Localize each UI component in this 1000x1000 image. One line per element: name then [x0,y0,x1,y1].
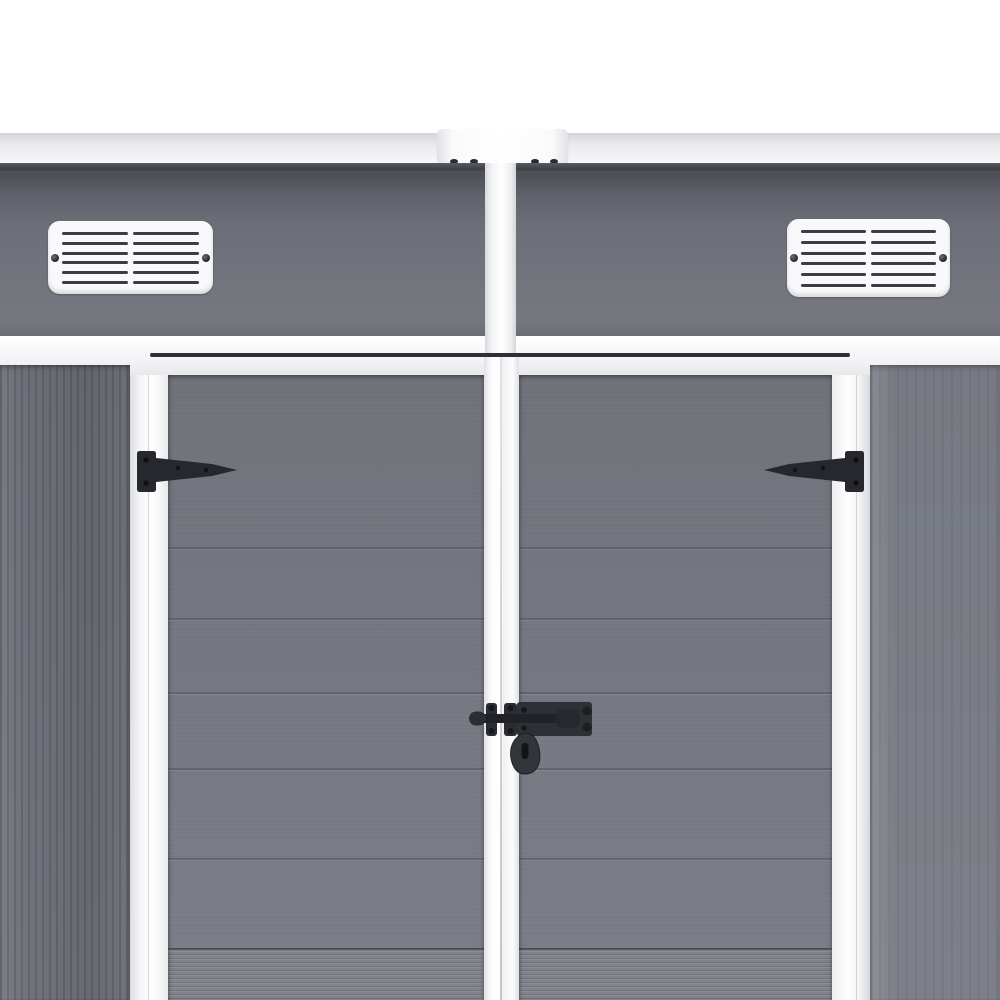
pad-bolt-latch-icon [469,702,592,774]
tee-hinge-left-icon [137,451,237,492]
shed-front-photo [0,0,1000,1000]
door-hardware-layer [0,0,1000,1000]
tee-hinge-right-icon [764,451,864,492]
